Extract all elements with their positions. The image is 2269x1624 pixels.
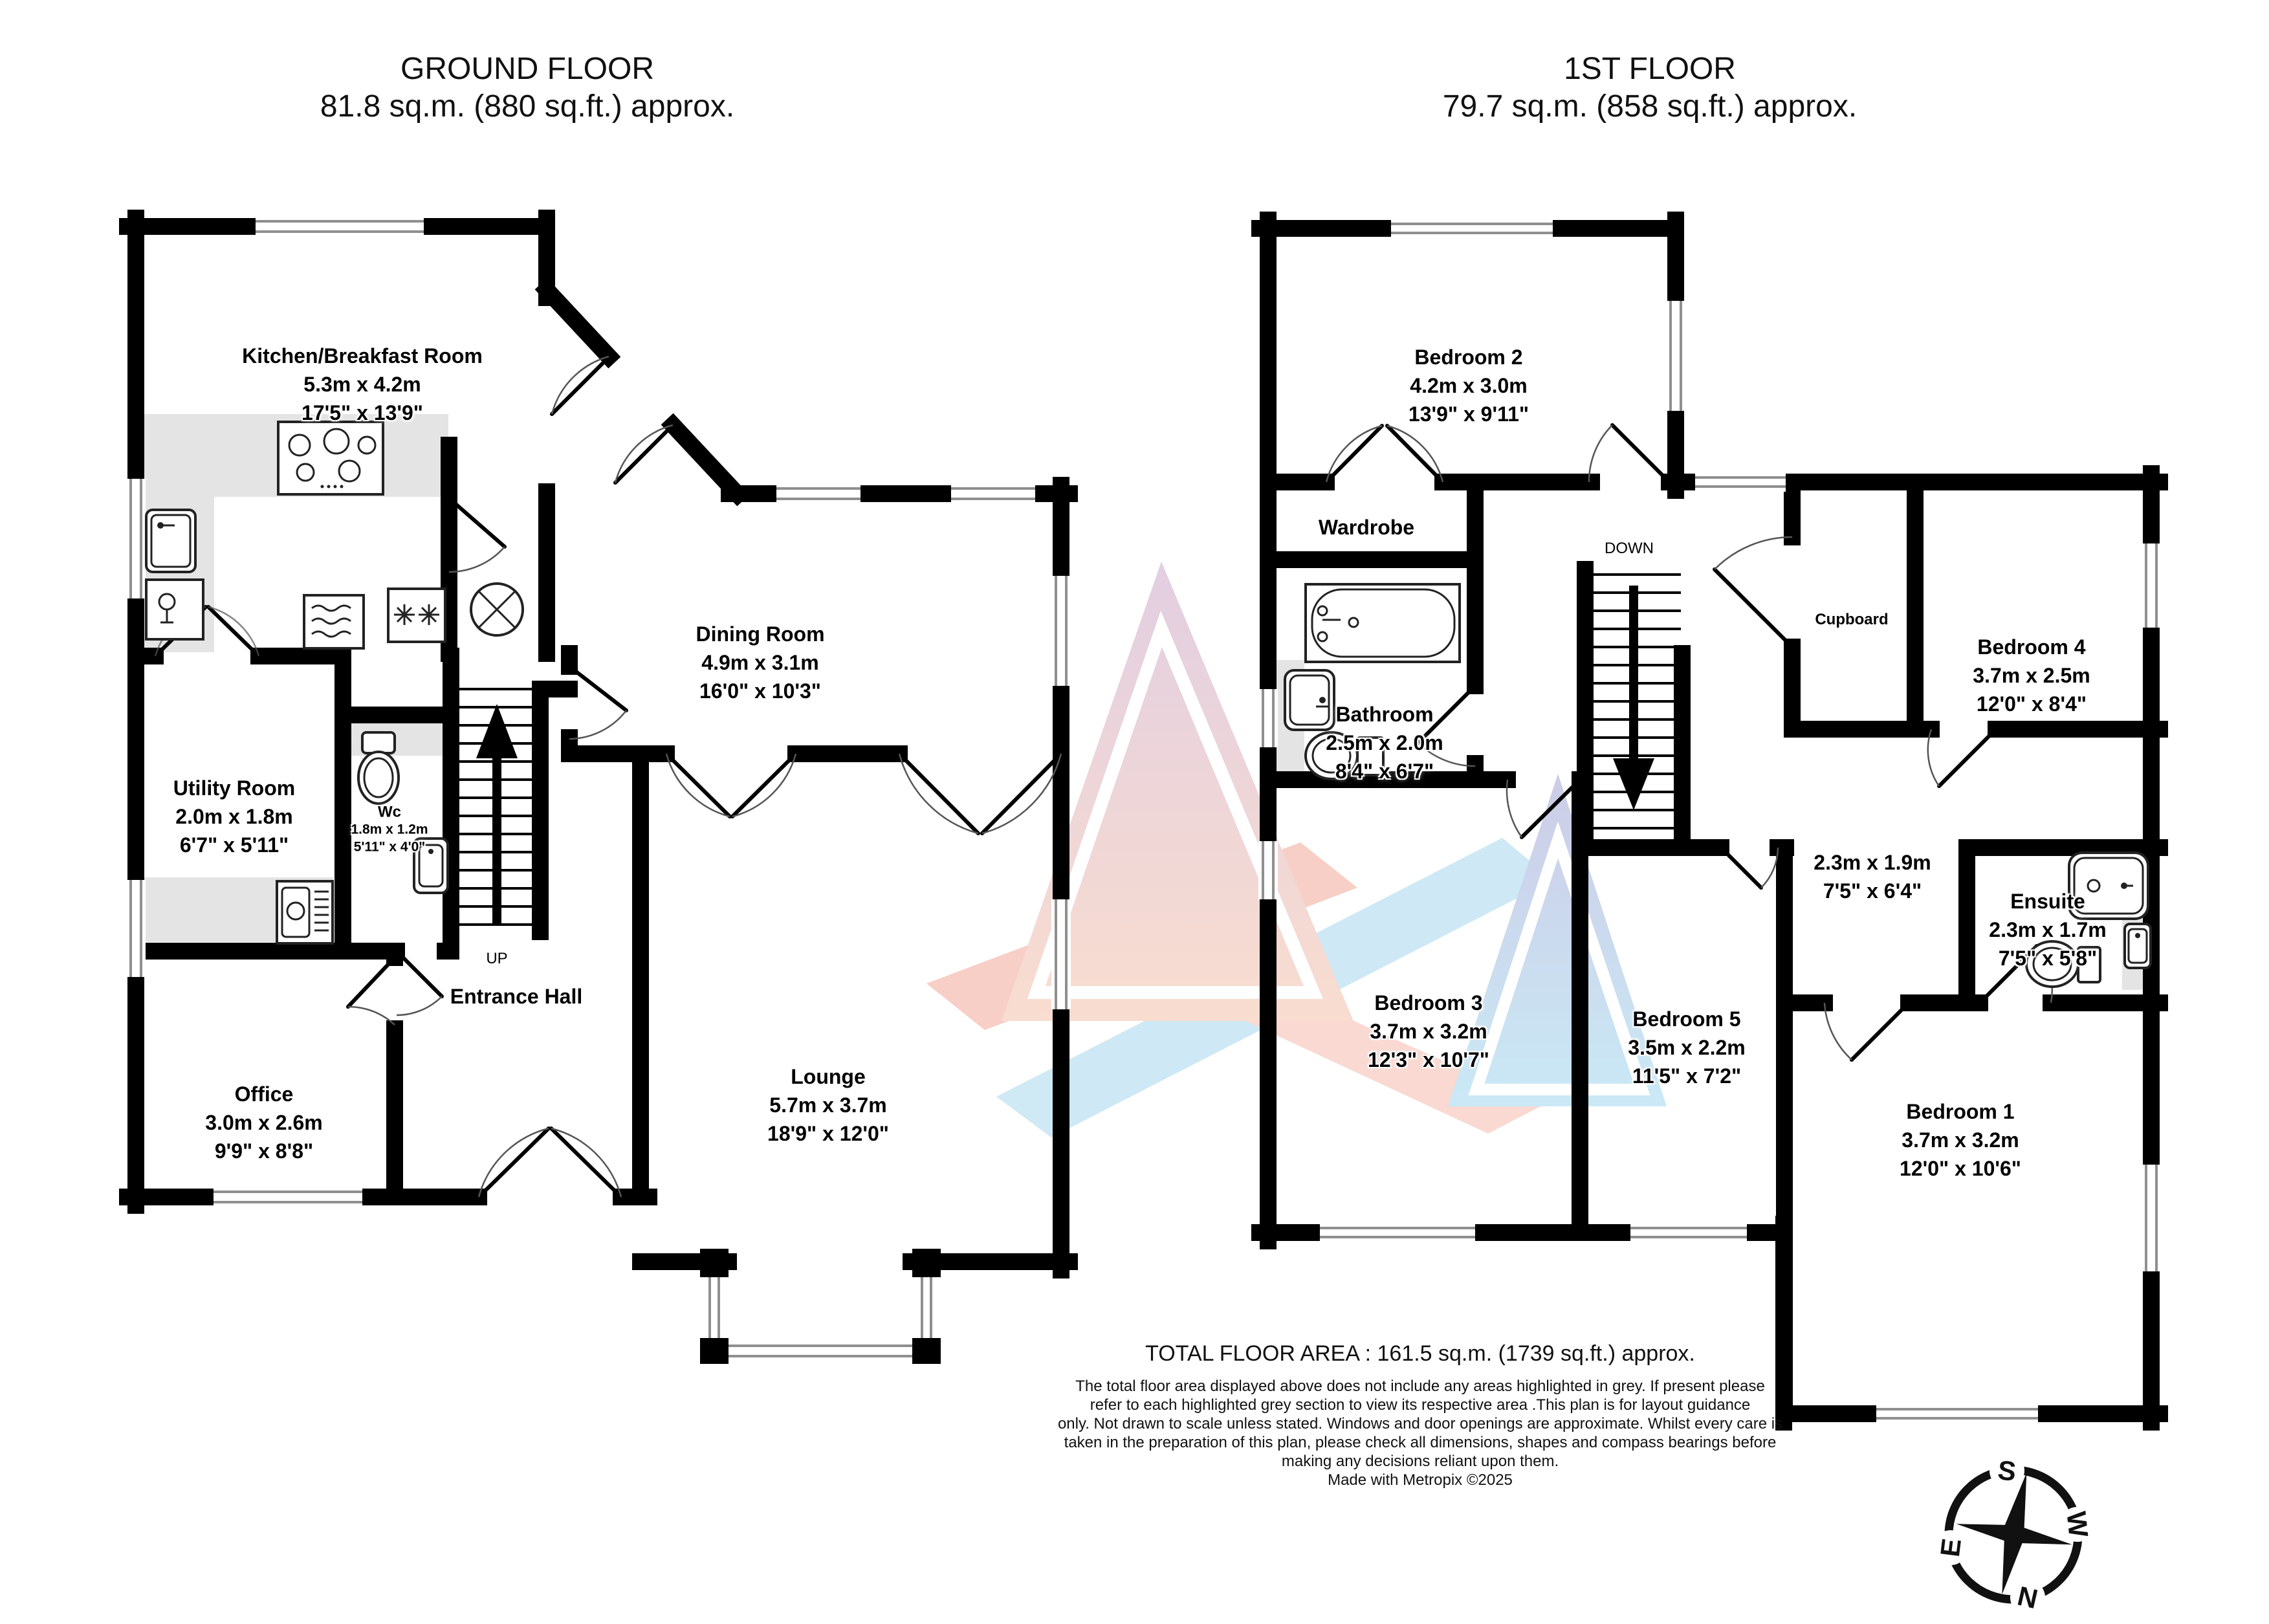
up-arrow-shaft: [492, 754, 501, 923]
room-label-wc: Wc 1.8m x 1.2m 5'11" x 4'0": [351, 804, 428, 856]
bathtub-icon: [1306, 584, 1460, 662]
window: [256, 217, 424, 236]
room-label-landing: 2.3m x 1.9m 7'5" x 6'4": [1814, 848, 1931, 905]
ground-floor-header: GROUND FLOOR 81.8 sq.m. (880 sq.ft.) app…: [320, 50, 734, 126]
room-label-wardrobe: Wardrobe: [1319, 513, 1414, 542]
ensuite-sink-icon: [2125, 924, 2151, 968]
window: [1666, 301, 1685, 411]
window: [1630, 1223, 1747, 1242]
down-arrow-head: [1613, 758, 1654, 810]
window: [1695, 472, 1786, 492]
ground-floor-title: GROUND FLOOR: [320, 50, 734, 88]
room-label-cupboard: Cupboard: [1815, 610, 1888, 630]
metropix-credit: Made with Metropix ©2025: [1058, 1471, 1782, 1489]
room-label-bathroom: Bathroom 2.5m x 2.0m 8'4" x 6'7": [1326, 700, 1443, 785]
room-label-bedroom1: Bedroom 1 3.7m x 3.2m 12'0" x 10'6": [1900, 1097, 2021, 1183]
window: [951, 484, 1035, 503]
room-label-bedroom5: Bedroom 5 3.5m x 2.2m 11'5" x 7'2": [1628, 1005, 1745, 1090]
up-arrow-head: [476, 704, 518, 758]
window: [214, 1187, 362, 1207]
room-label-bedroom3: Bedroom 3 3.7m x 3.2m 12'3" x 10'7": [1368, 989, 1489, 1074]
room-label-ensuite: Ensuite 2.3m x 1.7m 7'5" x 5'8": [1989, 887, 2106, 972]
compass-south-label: S: [1997, 1454, 2018, 1487]
room-label-bedroom4: Bedroom 4 3.7m x 2.5m 12'0" x 8'4": [1973, 633, 2090, 718]
compass-east-label: E: [1935, 1537, 1967, 1559]
first-floor-header: 1ST FLOOR 79.7 sq.m. (858 sq.ft.) approx…: [1443, 50, 1857, 126]
window: [1320, 1223, 1475, 1242]
first-floor-area: 79.7 sq.m. (858 sq.ft.) approx.: [1443, 88, 1857, 126]
staircase-down: [1586, 575, 1681, 844]
total-floor-area: TOTAL FLOOR AREA : 161.5 sq.m. (1739 sq.…: [1145, 1341, 1695, 1366]
window: [2142, 1165, 2161, 1271]
compass-west-label: W: [2061, 1510, 2094, 1539]
wc-toilet-icon: [358, 732, 399, 804]
window: [1051, 576, 1071, 686]
window: [1876, 1404, 2038, 1423]
window: [126, 880, 146, 977]
fridge-freezer-icon: [388, 589, 445, 642]
room-label-office: Office 3.0m x 2.6m 9'9" x 8'8": [205, 1080, 322, 1165]
window: [1258, 841, 1278, 899]
first-floor-windows: [1258, 219, 2161, 1423]
disclaimer: The total floor area displayed above doe…: [1058, 1377, 1782, 1489]
staircase-up: [454, 689, 539, 925]
window: [2142, 543, 2161, 628]
room-label-lounge: Lounge 5.7m x 3.7m 18'9" x 12'0": [767, 1062, 889, 1148]
down-arrow-shaft: [1629, 586, 1638, 762]
stairs-down-label: DOWN: [1605, 540, 1654, 558]
window: [1051, 899, 1071, 1009]
ground-floor-area: 81.8 sq.m. (880 sq.ft.) approx.: [320, 88, 734, 126]
washing-machine-icon: [277, 881, 333, 943]
floorplan-canvas: S W N E GROUND FLOOR 81.8 sq.m. (880 sq.…: [0, 0, 2269, 1624]
first-floor-title: 1ST FLOOR: [1443, 50, 1857, 88]
compass-rose: S W N E: [1933, 1453, 2095, 1615]
hob-icon: [278, 422, 383, 494]
stairs-up-label: UP: [486, 950, 507, 968]
room-label-kitchen: Kitchen/Breakfast Room 5.3m x 4.2m 17'5"…: [242, 342, 483, 427]
window: [126, 479, 146, 598]
window: [776, 484, 860, 503]
room-label-bedroom2: Bedroom 2 4.2m x 3.0m 13'9" x 9'11": [1409, 343, 1529, 428]
room-label-dining: Dining Room 4.9m x 3.1m 16'0" x 10'3": [696, 620, 824, 705]
oven-icon: [304, 595, 364, 648]
window: [1391, 219, 1553, 238]
room-label-entrance-hall: Entrance Hall: [450, 982, 583, 1011]
metropix-watermark: [926, 562, 1667, 1137]
window: [1258, 689, 1278, 747]
dishwasher-icon: [146, 580, 203, 639]
room-label-utility: Utility Room 2.0m x 1.8m 6'7" x 5'11": [173, 774, 295, 859]
light-fixture-icon: [471, 584, 523, 635]
kitchen-sink-icon: [146, 510, 195, 572]
